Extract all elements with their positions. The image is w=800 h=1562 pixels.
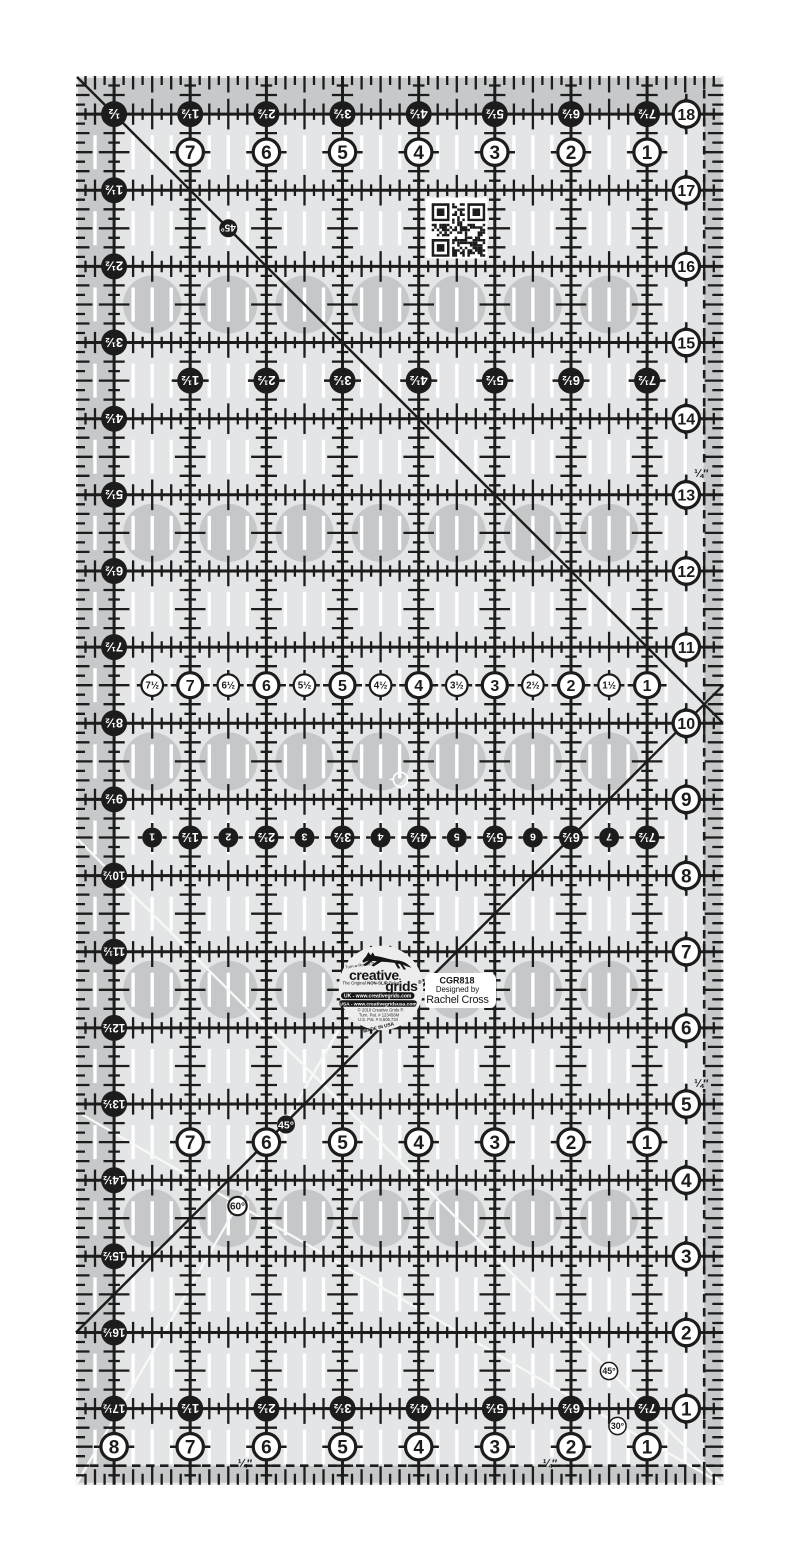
svg-text:60°: 60° [230, 1202, 245, 1213]
svg-text:7½: 7½ [105, 639, 123, 654]
svg-text:4: 4 [413, 1133, 424, 1154]
svg-text:10: 10 [677, 716, 695, 733]
svg-text:7: 7 [186, 678, 195, 695]
svg-text:3½: 3½ [450, 681, 464, 692]
svg-text:¼″: ¼″ [238, 1458, 253, 1470]
svg-text:1: 1 [642, 1438, 653, 1459]
svg-text:5½: 5½ [486, 106, 504, 121]
svg-text:2½: 2½ [257, 1401, 275, 1416]
svg-text:7½: 7½ [638, 1401, 656, 1416]
svg-text:UK - www.creativegrids.com: UK - www.creativegrids.com [344, 994, 412, 1000]
svg-text:6: 6 [261, 1438, 272, 1459]
svg-text:17½: 17½ [103, 1401, 126, 1413]
svg-text:¼″: ¼″ [694, 468, 709, 480]
svg-text:3: 3 [490, 1133, 501, 1154]
svg-text:8½: 8½ [105, 716, 123, 731]
svg-text:1: 1 [643, 678, 652, 695]
svg-text:¼″: ¼″ [694, 1078, 709, 1090]
svg-text:2: 2 [566, 1438, 577, 1459]
svg-text:6: 6 [261, 1133, 272, 1154]
svg-text:1½: 1½ [602, 681, 616, 692]
svg-text:4: 4 [378, 831, 384, 843]
svg-text:5½: 5½ [105, 487, 123, 502]
svg-text:2½: 2½ [257, 373, 275, 388]
svg-text:7: 7 [185, 1133, 196, 1154]
svg-text:4: 4 [413, 143, 424, 164]
svg-text:2½: 2½ [258, 830, 275, 844]
svg-text:3½: 3½ [333, 106, 351, 121]
svg-text:3½: 3½ [333, 373, 351, 388]
svg-text:6½: 6½ [562, 373, 580, 388]
svg-text:2½: 2½ [105, 259, 123, 274]
svg-text:12½: 12½ [103, 1021, 126, 1033]
svg-text:3: 3 [681, 1247, 692, 1268]
svg-text:1: 1 [149, 831, 155, 843]
svg-text:14½: 14½ [103, 1173, 126, 1185]
svg-text:7: 7 [606, 831, 612, 843]
svg-text:5: 5 [681, 1095, 692, 1116]
svg-text:7½: 7½ [638, 106, 656, 121]
svg-text:5: 5 [337, 143, 348, 164]
svg-text:11: 11 [678, 640, 695, 657]
svg-text:4½: 4½ [410, 373, 428, 388]
svg-text:2: 2 [566, 143, 577, 164]
svg-text:6: 6 [262, 678, 271, 695]
svg-text:6: 6 [261, 143, 272, 164]
svg-text:3: 3 [301, 831, 307, 843]
svg-text:USA - www.creativegridsusa.com: USA - www.creativegridsusa.com [339, 1001, 417, 1007]
svg-text:4: 4 [414, 678, 423, 695]
svg-text:3½: 3½ [334, 830, 351, 844]
svg-text:¼″: ¼″ [543, 1458, 558, 1470]
svg-text:16½: 16½ [103, 1325, 126, 1337]
svg-text:4½: 4½ [374, 681, 388, 692]
svg-text:7: 7 [185, 143, 196, 164]
svg-text:11½: 11½ [103, 945, 125, 957]
svg-text:6½: 6½ [562, 106, 580, 121]
svg-text:6½: 6½ [105, 563, 123, 578]
svg-text:5½: 5½ [486, 830, 503, 844]
svg-text:5: 5 [337, 1438, 348, 1459]
svg-text:2½: 2½ [526, 681, 540, 692]
svg-text:4½: 4½ [410, 830, 427, 844]
svg-text:7½: 7½ [638, 830, 655, 844]
svg-text:15½: 15½ [103, 1249, 126, 1261]
svg-text:1½: 1½ [181, 106, 199, 121]
svg-text:45°: 45° [278, 1119, 294, 1131]
svg-text:5: 5 [338, 678, 347, 695]
svg-text:U.S. Pat. # 8,505,734: U.S. Pat. # 8,505,734 [358, 1017, 399, 1022]
svg-text:®: ® [418, 979, 422, 986]
svg-text:1: 1 [642, 143, 653, 164]
svg-text:5½: 5½ [298, 681, 312, 692]
svg-text:2: 2 [566, 1133, 577, 1154]
svg-text:7: 7 [185, 1438, 196, 1459]
svg-text:7: 7 [681, 943, 692, 964]
svg-text:1½: 1½ [181, 373, 199, 388]
svg-text:14: 14 [677, 411, 695, 428]
svg-text:5½: 5½ [486, 1401, 504, 1416]
svg-text:6: 6 [681, 1019, 692, 1040]
svg-text:9: 9 [681, 790, 692, 811]
svg-text:6: 6 [530, 831, 536, 843]
svg-text:15: 15 [677, 335, 695, 352]
svg-text:5: 5 [337, 1133, 348, 1154]
svg-text:13: 13 [677, 488, 695, 505]
svg-text:3½: 3½ [105, 335, 123, 350]
svg-text:10½: 10½ [103, 868, 126, 880]
svg-text:8: 8 [109, 1438, 120, 1459]
svg-text:2: 2 [225, 831, 231, 843]
svg-text:1: 1 [642, 1133, 653, 1154]
svg-text:6½: 6½ [562, 830, 579, 844]
svg-text:½: ½ [108, 106, 120, 122]
svg-text:45°: 45° [602, 1366, 616, 1376]
svg-text:2½: 2½ [257, 106, 275, 121]
svg-text:45°: 45° [221, 222, 236, 233]
svg-text:6½: 6½ [221, 681, 235, 692]
svg-text:1: 1 [681, 1399, 692, 1420]
svg-text:30°: 30° [611, 1421, 625, 1431]
svg-text:9½: 9½ [105, 792, 123, 807]
svg-text:Rachel Cross: Rachel Cross [426, 994, 489, 1006]
svg-text:3: 3 [490, 143, 501, 164]
svg-text:3½: 3½ [333, 1401, 351, 1416]
svg-text:12: 12 [677, 564, 695, 581]
svg-text:3: 3 [490, 678, 499, 695]
svg-text:4½: 4½ [105, 411, 123, 426]
svg-text:13½: 13½ [103, 1097, 126, 1109]
svg-text:17: 17 [677, 183, 695, 200]
svg-text:3: 3 [490, 1438, 501, 1459]
svg-text:6½: 6½ [562, 1401, 580, 1416]
svg-text:1½: 1½ [181, 1401, 199, 1416]
svg-text:7½: 7½ [638, 373, 656, 388]
svg-text:18: 18 [677, 107, 695, 124]
svg-text:1½: 1½ [105, 183, 123, 198]
svg-text:5: 5 [454, 831, 460, 843]
svg-text:CGR818: CGR818 [439, 976, 474, 986]
svg-text:5½: 5½ [486, 373, 504, 388]
svg-text:4: 4 [681, 1171, 692, 1192]
svg-text:1½: 1½ [182, 830, 199, 844]
svg-text:4: 4 [413, 1438, 424, 1459]
svg-text:4½: 4½ [410, 106, 428, 121]
svg-text:16: 16 [677, 259, 695, 276]
svg-text:Designed by: Designed by [436, 985, 479, 994]
svg-text:grids: grids [385, 978, 418, 994]
svg-text:2: 2 [567, 678, 576, 695]
svg-text:7½: 7½ [145, 681, 159, 692]
svg-text:8: 8 [681, 866, 692, 887]
svg-text:2: 2 [681, 1323, 692, 1344]
svg-text:4½: 4½ [410, 1401, 428, 1416]
